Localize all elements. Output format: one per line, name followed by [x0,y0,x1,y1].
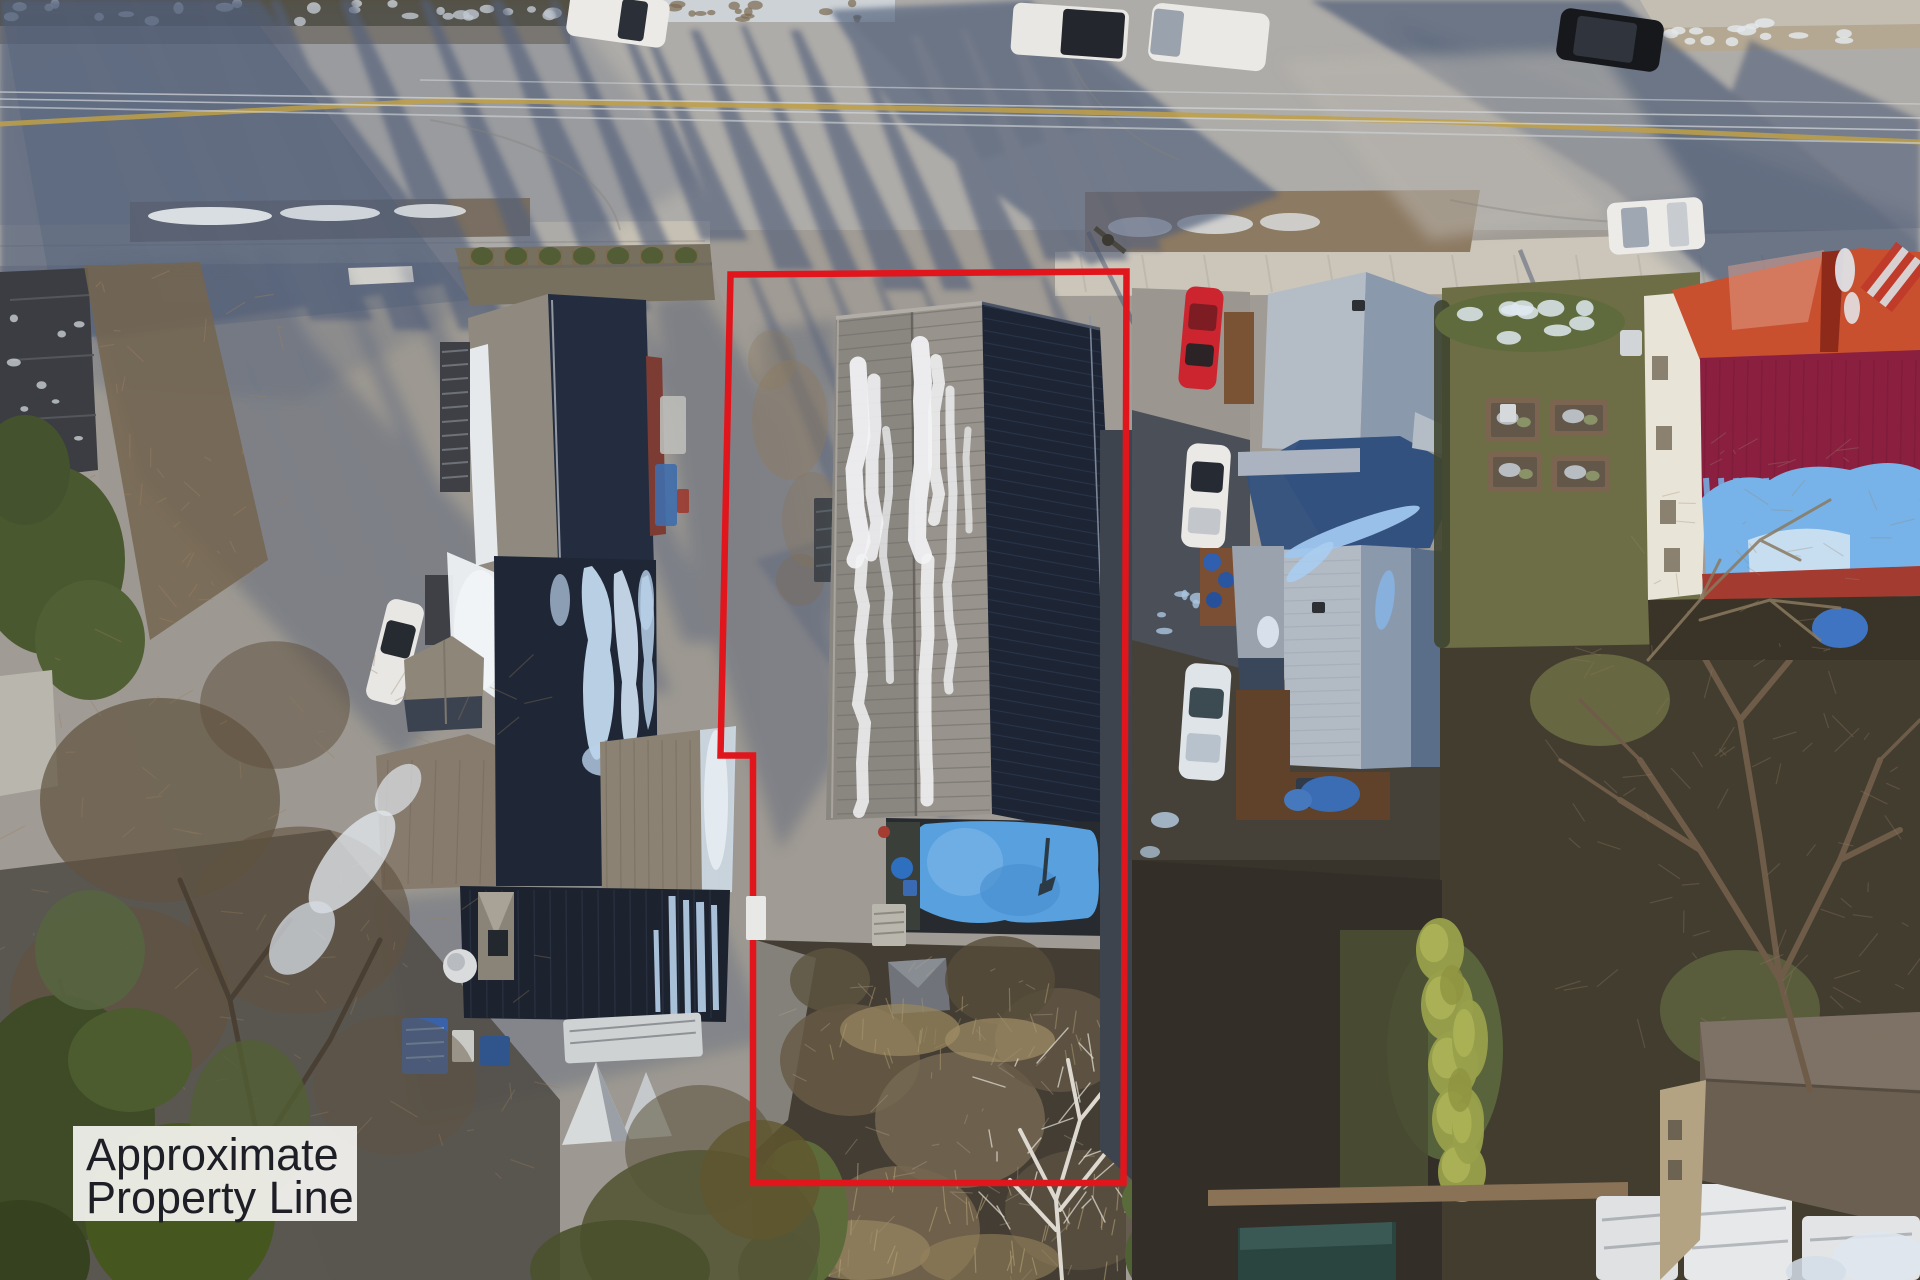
svg-text:Property Line: Property Line [86,1172,354,1223]
